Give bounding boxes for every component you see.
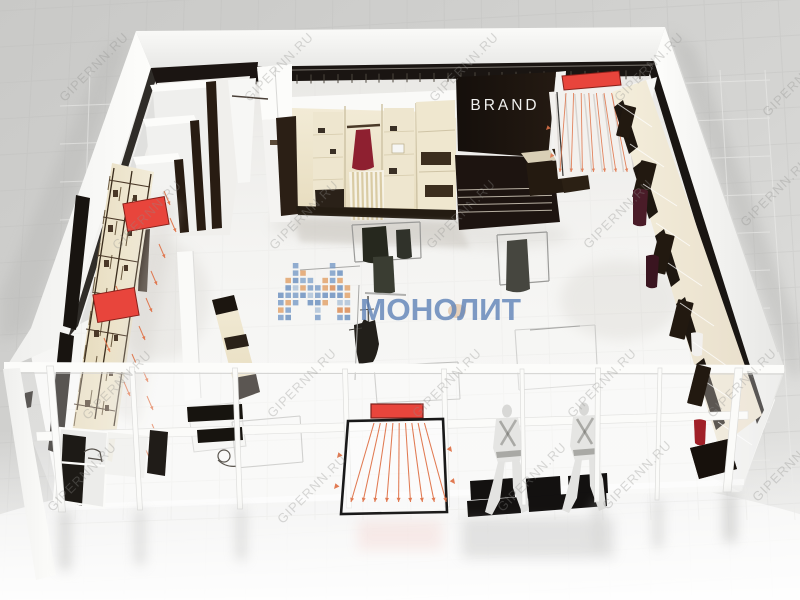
svg-text:МОНОЛИТ: МОНОЛИТ: [360, 293, 521, 327]
svg-text:BRAND: BRAND: [470, 97, 539, 114]
